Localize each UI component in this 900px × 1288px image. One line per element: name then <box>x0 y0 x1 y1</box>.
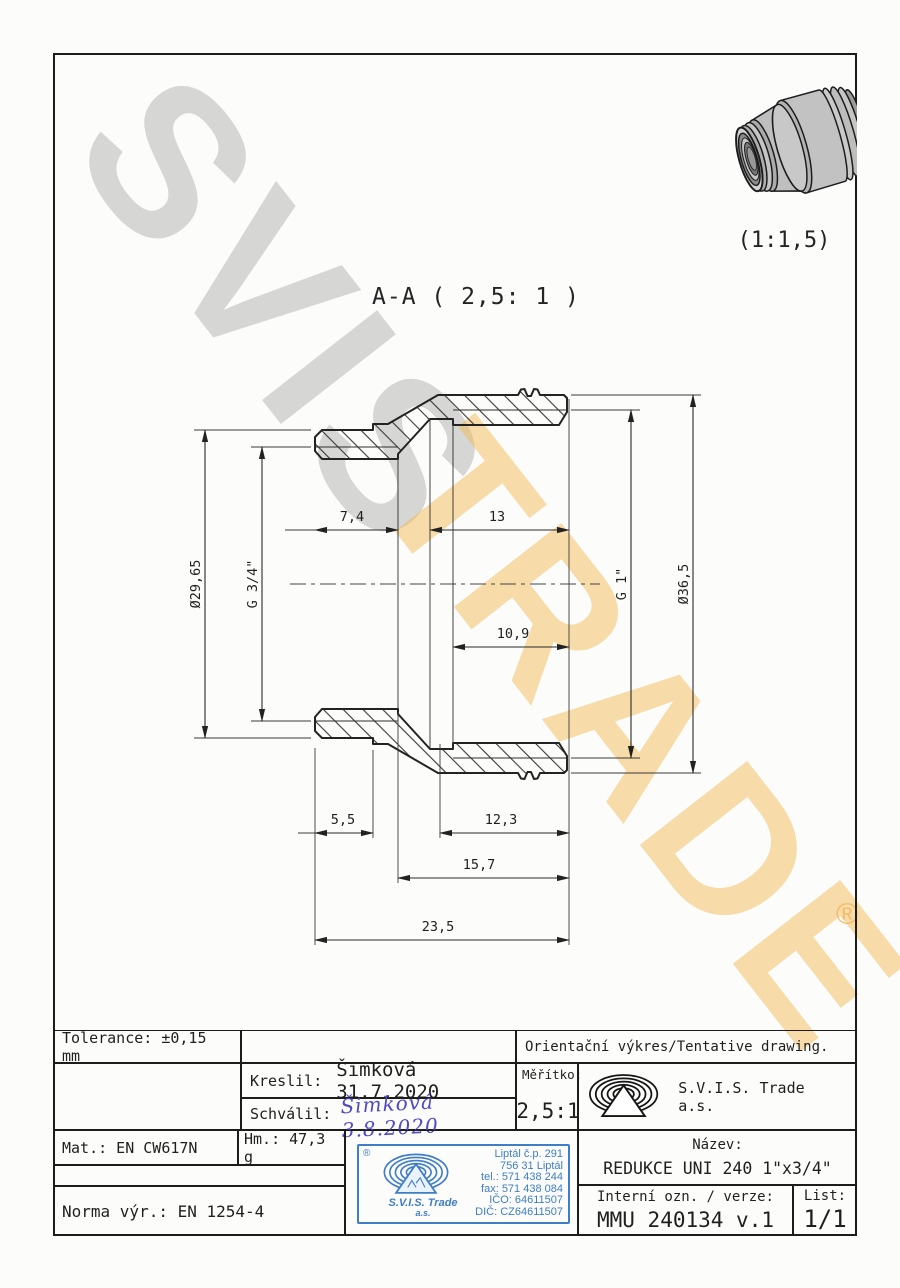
bottom-wall <box>315 709 567 779</box>
list-value: 1/1 <box>803 1205 846 1233</box>
perspective-view <box>726 80 857 208</box>
schvalil-cell: Schválil: Šimková 3.8.2020 <box>241 1098 516 1130</box>
kreslil-label: Kreslil: <box>250 1072 322 1090</box>
dim-dia-29-65: Ø29,65 <box>188 560 204 609</box>
stamp-registered-icon: ® <box>363 1148 370 1159</box>
nazev-value: REDUKCE UNI 240 1"x3/4" <box>603 1159 831 1178</box>
section-title: A-A ( 2,5: 1 ) <box>372 284 580 310</box>
norma-cell: Norma výr.: EN 1254-4 <box>53 1186 345 1236</box>
dim-15-7: 15,7 <box>463 857 496 873</box>
empty-cell-left2 <box>53 1165 345 1186</box>
perspective-scale-label: (1:1,5) <box>738 228 831 253</box>
meritko-cell: Měřítko: 2,5:1 <box>516 1063 578 1130</box>
orientation-note-text: Orientační výkres/Tentative drawing. <box>525 1039 828 1055</box>
schvalil-label: Schválil: <box>250 1105 331 1123</box>
stamp-address-line: Liptál č.p. 291 <box>475 1149 563 1161</box>
norma-text: Norma výr.: EN 1254-4 <box>62 1202 264 1221</box>
stamp-company-suffix: a.s. <box>367 1208 479 1218</box>
dim-dia-36-5: Ø36,5 <box>676 564 692 605</box>
weight-text: Hm.: 47,3 g <box>244 1130 339 1166</box>
list-label: List: <box>804 1188 846 1204</box>
stamp-cell: ® S.V.I.S. Trade a.s. Liptál č.p. 291 75… <box>345 1130 578 1236</box>
nazev-cell: Název: REDUKCE UNI 240 1"x3/4" <box>578 1130 857 1185</box>
company-cell: S.V.I.S. Trade a.s. <box>578 1063 857 1130</box>
stamp-address-line: DIČ: CZ64611507 <box>475 1207 563 1219</box>
dim-5-5: 5,5 <box>331 812 355 828</box>
stamp-address: Liptál č.p. 291 756 31 Liptál tel.: 571 … <box>475 1149 563 1219</box>
tolerance-cell: Tolerance: ±0,15 mm <box>53 1030 241 1063</box>
drawing-sheet: SVIS TRADE ® A-A ( 2,5: 1 ) <box>0 0 900 1288</box>
svis-logo-icon <box>587 1072 660 1122</box>
dim-13: 13 <box>489 509 505 525</box>
stamp-company: S.V.I.S. Trade <box>367 1198 479 1208</box>
dimension-lines <box>205 395 693 940</box>
dim-23-5: 23,5 <box>422 919 455 935</box>
interni-value: MMU 240134 v.1 <box>597 1208 774 1232</box>
company-stamp: ® S.V.I.S. Trade a.s. Liptál č.p. 291 75… <box>357 1144 570 1224</box>
dim-g1: G 1" <box>614 568 630 601</box>
interni-label: Interní ozn. / verze: <box>597 1189 774 1205</box>
orientation-note-cell: Orientační výkres/Tentative drawing. <box>516 1030 857 1063</box>
svis-stamp-logo-icon <box>373 1153 459 1197</box>
section-drawing: A-A ( 2,5: 1 ) <box>53 53 857 1030</box>
top-wall <box>315 389 567 459</box>
meritko-value: 2,5:1 <box>516 1099 579 1123</box>
dimension-labels: 7,4 13 10,9 5,5 12,3 15,7 23,5 Ø29,65 G … <box>188 509 692 935</box>
empty-cell-left <box>53 1063 241 1130</box>
tolerance-text: Tolerance: ±0,15 mm <box>62 1029 232 1065</box>
list-cell: List: 1/1 <box>793 1185 857 1236</box>
extension-lines <box>194 395 701 945</box>
weight-cell: Hm.: 47,3 g <box>238 1130 345 1165</box>
interni-cell: Interní ozn. / verze: MMU 240134 v.1 <box>578 1185 793 1236</box>
nazev-label: Název: <box>692 1137 743 1153</box>
material-text: Mat.: EN CW617N <box>62 1139 197 1157</box>
material-cell: Mat.: EN CW617N <box>53 1130 238 1165</box>
meritko-label: Měřítko: <box>522 1067 582 1082</box>
dim-12-3: 12,3 <box>485 812 518 828</box>
company-name: S.V.I.S. Trade a.s. <box>678 1079 848 1115</box>
dim-7-4: 7,4 <box>340 509 364 525</box>
dim-10-9: 10,9 <box>497 626 530 642</box>
dim-g34: G 3/4" <box>245 560 261 609</box>
